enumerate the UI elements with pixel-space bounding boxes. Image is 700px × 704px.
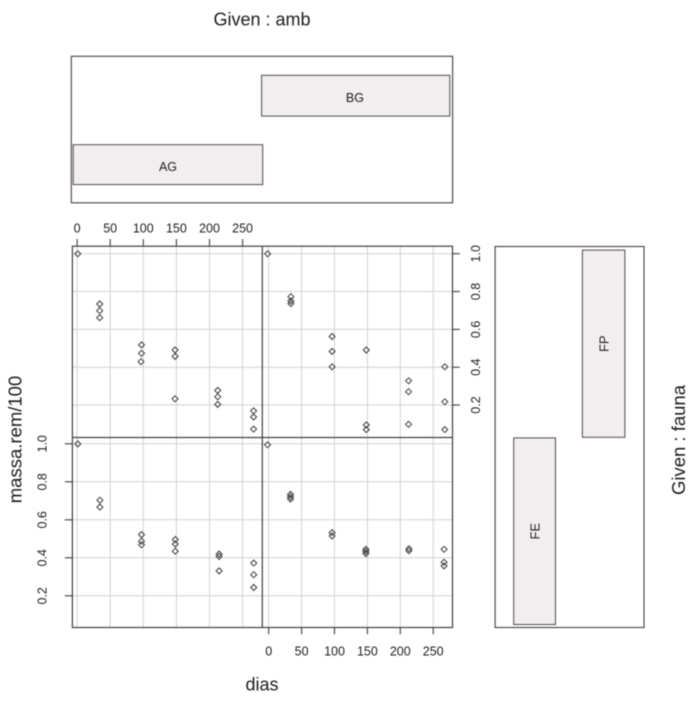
svg-text:FE: FE [527,523,542,540]
svg-text:0.6: 0.6 [469,321,483,338]
svg-text:1.0: 1.0 [36,435,50,452]
svg-text:BG: BG [346,91,364,105]
svg-text:250: 250 [232,221,253,235]
svg-text:150: 150 [166,221,187,235]
svg-text:200: 200 [199,221,220,235]
svg-text:Given : fauna: Given : fauna [668,384,689,495]
svg-text:150: 150 [357,645,378,659]
svg-text:50: 50 [103,221,117,235]
svg-text:0.8: 0.8 [36,473,50,490]
svg-text:0.2: 0.2 [36,587,50,604]
svg-text:AG: AG [159,160,177,174]
svg-text:200: 200 [390,645,411,659]
svg-text:0.2: 0.2 [469,396,483,413]
svg-text:250: 250 [423,645,444,659]
svg-text:100: 100 [133,221,154,235]
svg-text:massa.rem/100: massa.rem/100 [5,376,26,504]
svg-text:0.4: 0.4 [469,358,483,375]
svg-text:FP: FP [596,335,611,352]
svg-text:0: 0 [265,645,272,659]
svg-text:0: 0 [74,221,81,235]
svg-text:dias: dias [245,675,278,695]
svg-text:100: 100 [324,645,345,659]
svg-text:0.8: 0.8 [469,283,483,300]
svg-text:50: 50 [295,645,309,659]
svg-text:0.6: 0.6 [36,511,50,528]
svg-text:Given : amb: Given : amb [213,10,310,30]
svg-text:0.4: 0.4 [36,549,50,566]
svg-text:1.0: 1.0 [469,245,483,262]
